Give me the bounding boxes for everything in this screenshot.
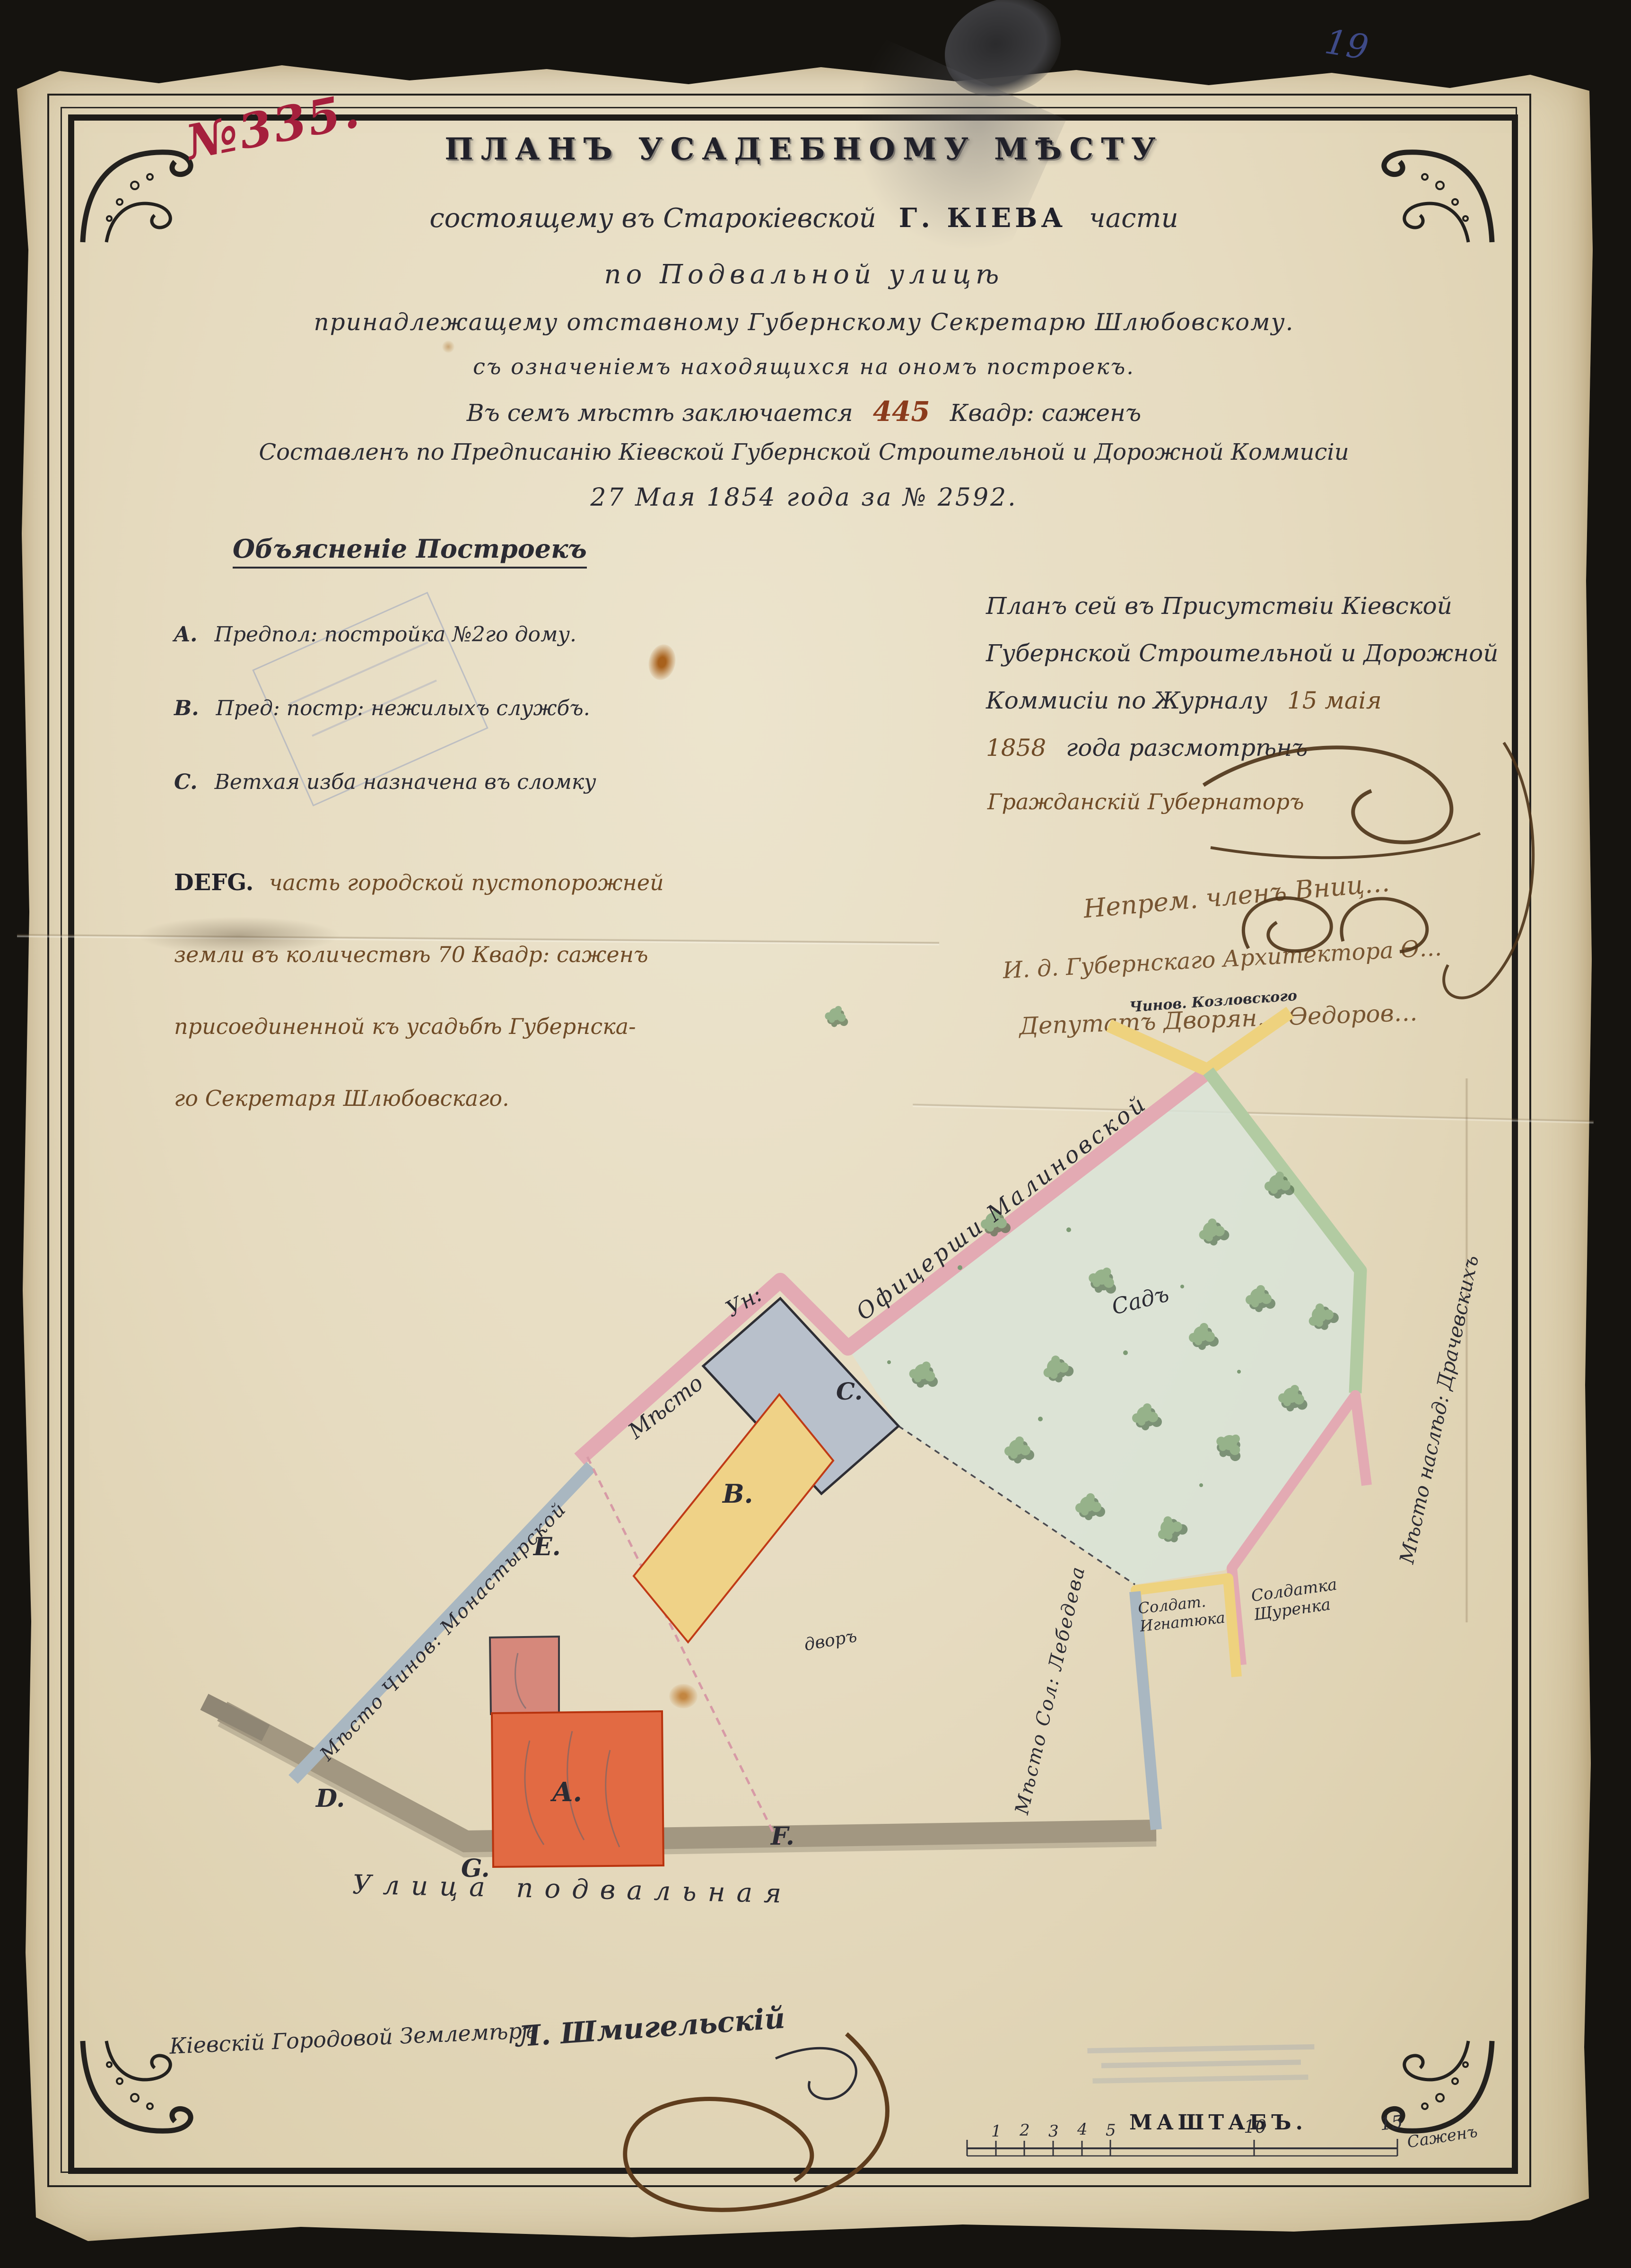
scale-tick-5: 5 bbox=[1106, 2121, 1116, 2140]
point-letter-f: F. bbox=[771, 1822, 794, 1851]
plan-drawing bbox=[0, 0, 1631, 2268]
point-letter-b: B. bbox=[723, 1479, 753, 1509]
point-letter-c: C. bbox=[836, 1377, 863, 1405]
scanned-plan-page: 19 №335. ПЛАНЪ УСАДЕБНОМУ МѢСТУ состояще… bbox=[0, 0, 1631, 2268]
scale-tick-3: 3 bbox=[1048, 2122, 1059, 2141]
building-b bbox=[634, 1394, 833, 1642]
scale-tick-4: 4 bbox=[1077, 2120, 1088, 2139]
building-a-annex bbox=[490, 1637, 559, 1714]
point-letter-a: A. bbox=[552, 1777, 582, 1808]
scale-tick-2: 2 bbox=[1020, 2121, 1030, 2140]
scale-tick-10: 10 bbox=[1244, 2116, 1266, 2137]
scale-title: МАШТАБЪ. bbox=[1129, 2110, 1307, 2135]
scale-bar-ruler bbox=[967, 2139, 1397, 2156]
point-letter-d: D. bbox=[316, 1784, 345, 1813]
band-yellow-junction bbox=[1109, 1012, 1290, 1070]
surveyor-signature-flourish bbox=[625, 2034, 888, 2210]
governor-signature-flourish bbox=[1204, 743, 1533, 998]
point-letter-g: G. bbox=[461, 1854, 490, 1883]
point-letter-e: E. bbox=[533, 1532, 561, 1561]
scale-tick-15: 15 bbox=[1379, 2111, 1404, 2135]
scale-tick-1: 1 bbox=[991, 2122, 1002, 2141]
